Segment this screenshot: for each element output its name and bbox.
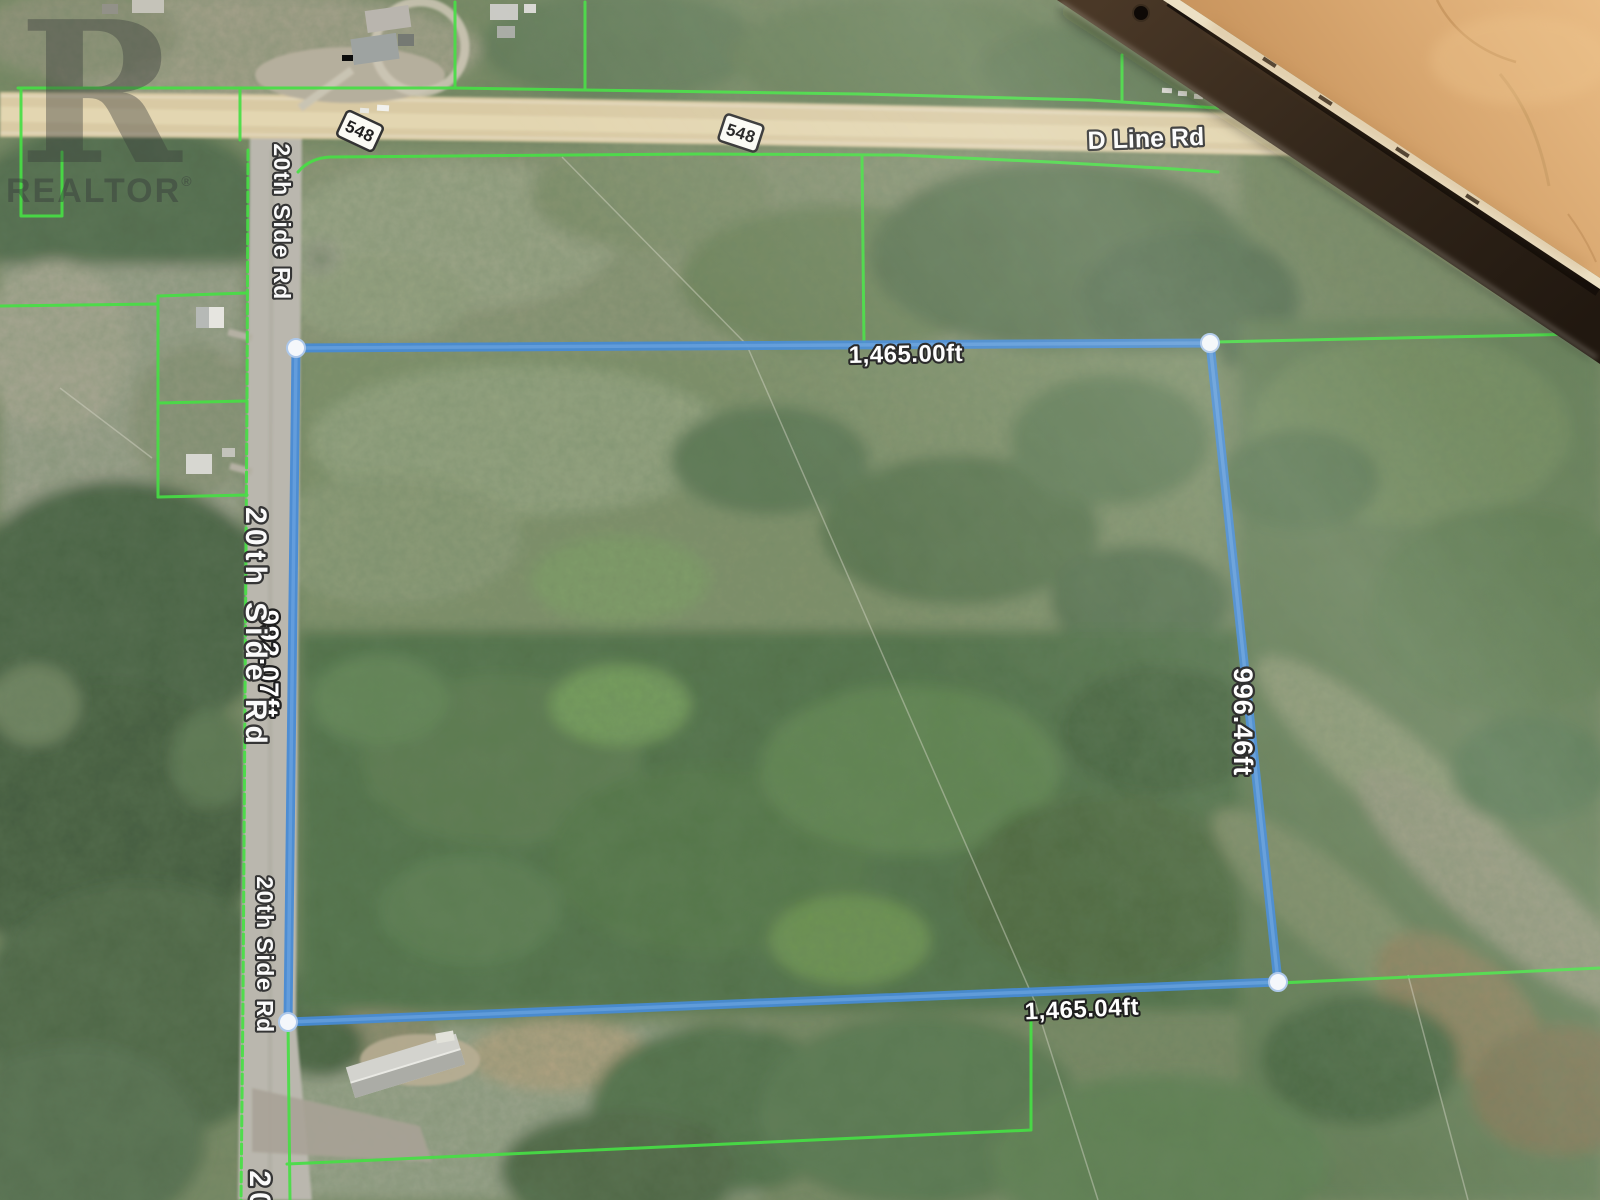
photo-of-map-screen: 1,465.00ft 1,465.04ft 996.46ft 992.07ft … — [0, 0, 1600, 1200]
tablet-camera-icon — [1133, 5, 1149, 21]
map-canvas[interactable]: 1,465.00ft 1,465.04ft 996.46ft 992.07ft … — [0, 0, 1600, 1200]
